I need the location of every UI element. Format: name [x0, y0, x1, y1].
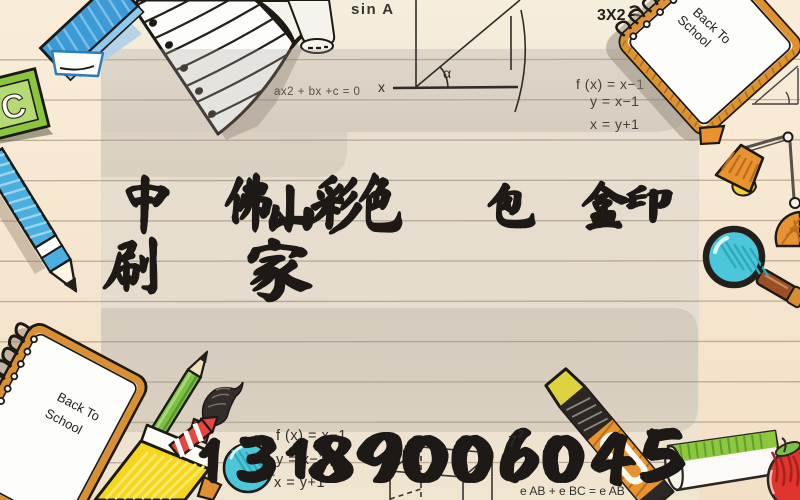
svg-text:ax2 + bx +c = 0: ax2 + bx +c = 0 [274, 86, 360, 98]
svg-text:x = y+1: x = y+1 [590, 116, 639, 132]
svg-text:y = x−1: y = x−1 [590, 93, 639, 109]
svg-text:sin A: sin A [351, 1, 395, 18]
svg-text:e AB + e BC = e AB: e AB + e BC = e AB [520, 484, 625, 498]
svg-text:x: x [378, 79, 385, 95]
svg-text:α: α [443, 65, 451, 81]
svg-text:2: 2 [518, 428, 524, 440]
svg-text:7: 7 [508, 434, 517, 451]
